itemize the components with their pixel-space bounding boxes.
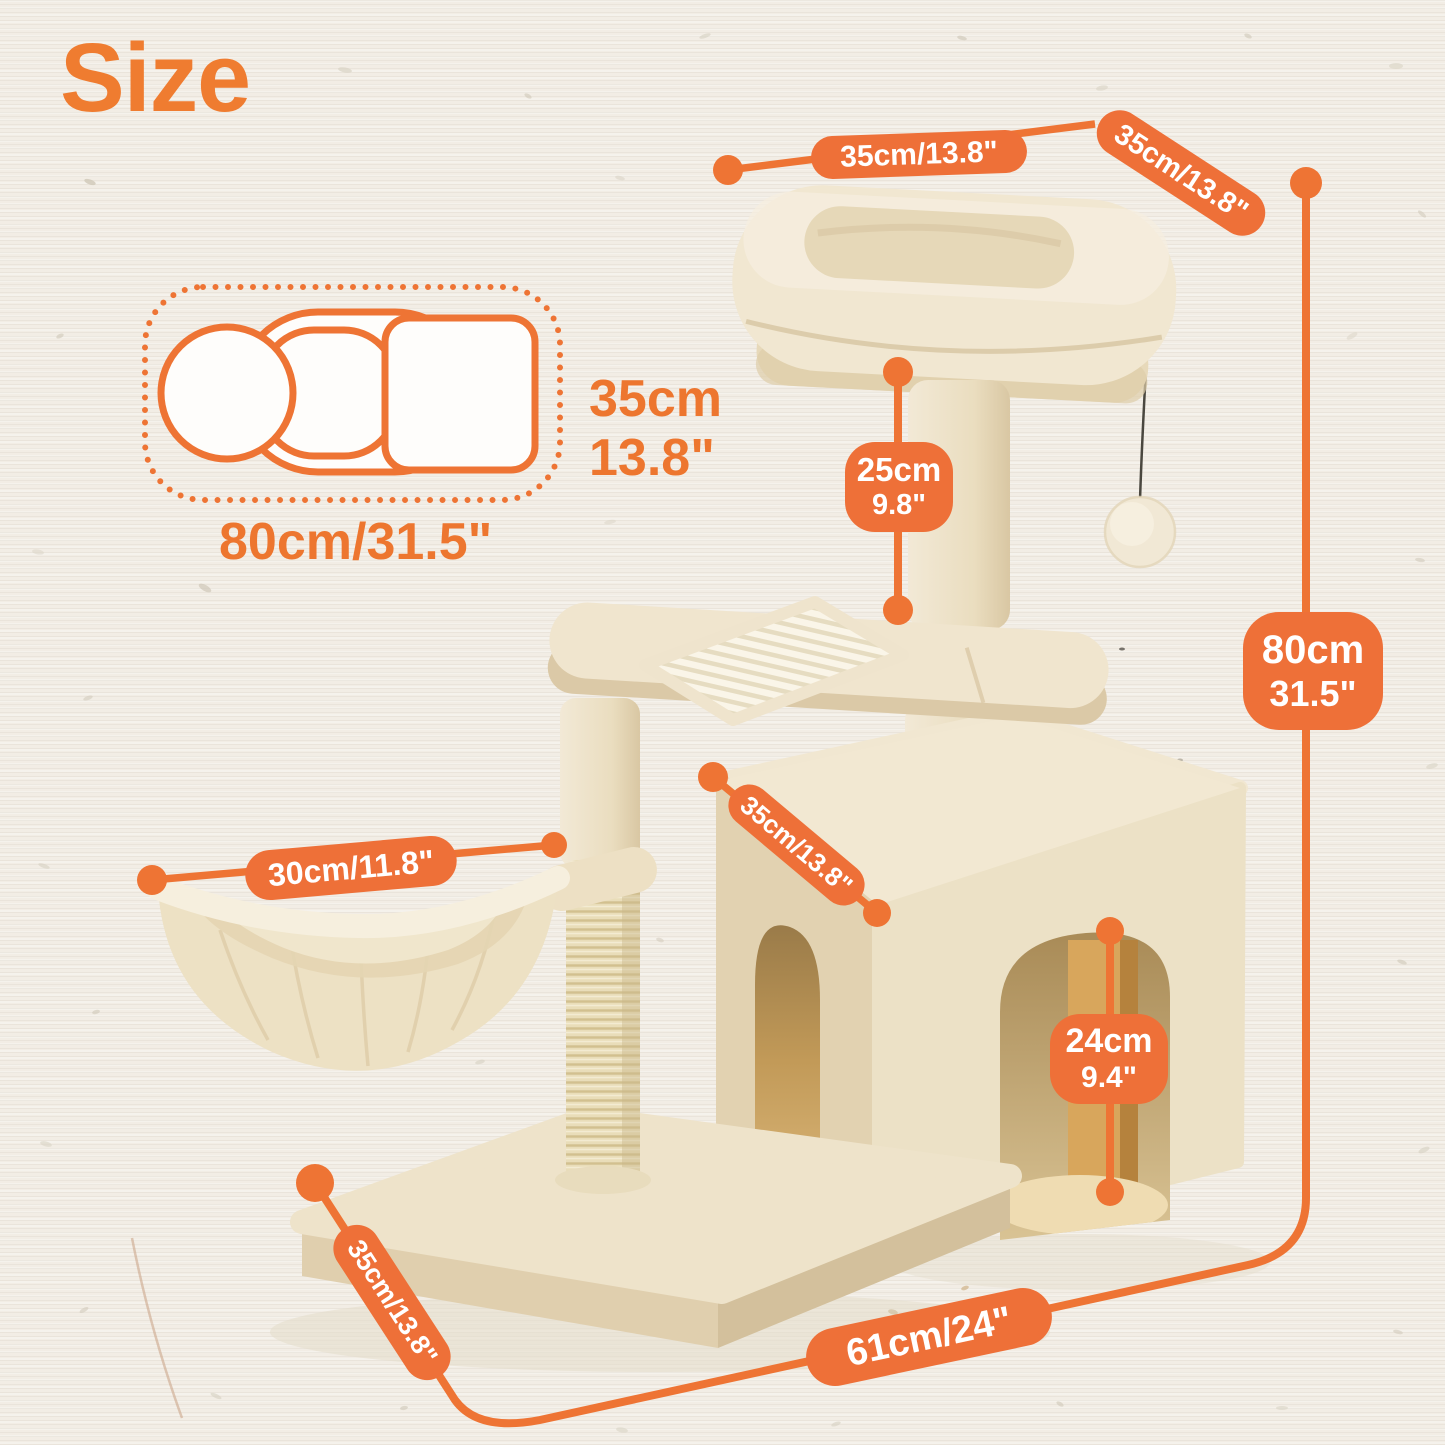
post-height-box: 25cm 9.8" (845, 442, 953, 532)
bed-width-pill: 35cm/13.8" (810, 129, 1027, 180)
door-height-cm: 24cm (1066, 1022, 1153, 1061)
total-height-cm: 80cm (1262, 627, 1364, 673)
total-height-box: 80cm 31.5" (1243, 612, 1383, 730)
size-infographic: Size 35cm 13.8" 80cm/31.5" 35cm/13.8" 35… (0, 0, 1445, 1445)
top-view-depth-inch: 13.8" (589, 429, 722, 488)
top-view-condo-shape (385, 318, 535, 470)
post-height-cm: 25cm (857, 451, 941, 489)
hanging-pompom (1105, 497, 1175, 567)
top-view-depth-label: 35cm 13.8" (589, 370, 722, 488)
top-bed (727, 181, 1181, 406)
door-height-box: 24cm 9.4" (1050, 1014, 1168, 1104)
top-view-depth-cm: 35cm (589, 370, 722, 429)
post-height-inch: 9.8" (872, 489, 926, 523)
left-plush-post (560, 698, 640, 868)
top-view-width-label: 80cm/31.5" (219, 512, 492, 572)
top-view-diagram (145, 287, 560, 500)
total-height-inch: 31.5" (1269, 673, 1356, 715)
basket-hammock (158, 878, 558, 1071)
sisal-post (555, 860, 651, 1194)
page-title: Size (60, 22, 250, 134)
top-view-basket-shape (161, 327, 293, 459)
door-height-inch: 9.4" (1081, 1061, 1137, 1096)
